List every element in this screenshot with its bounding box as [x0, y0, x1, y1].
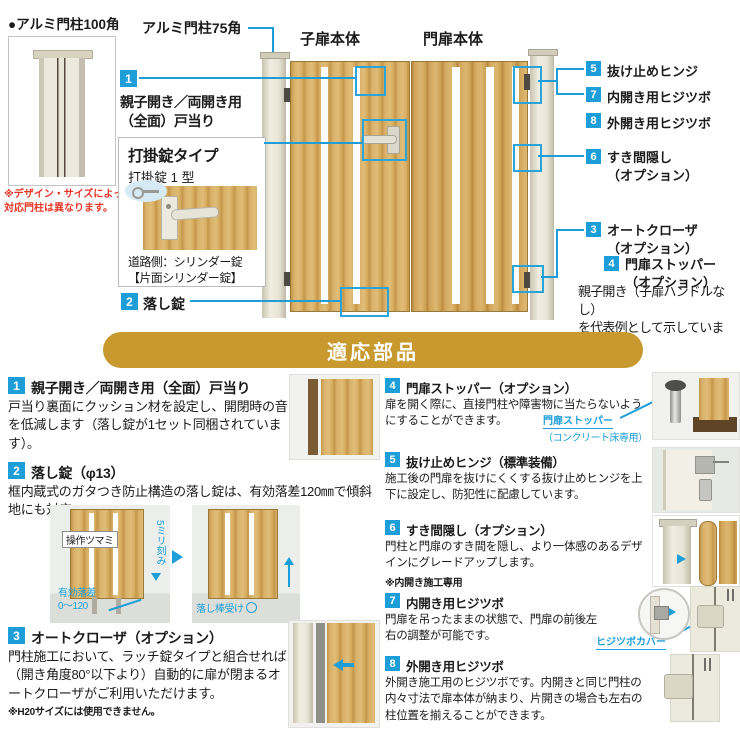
callout-7-badge: 7	[586, 87, 601, 102]
post100-note: ※デザイン・サイズによって 対応門柱は異なります。	[4, 188, 133, 215]
part-7-title: 内開き用ヒジツボ	[406, 593, 504, 612]
part-1-title: 親子開き／両開き用（全面）戸当り	[31, 378, 250, 398]
stopper-label-sub: （コンクリート床専用）	[543, 429, 648, 444]
part-8-title: 外開き用ヒジツボ	[406, 656, 504, 675]
stopper-label: 門扉ストッパー	[543, 412, 613, 429]
door-corner	[699, 378, 729, 420]
arrow-down-icon	[151, 573, 161, 581]
catalog-page: ●アルミ門柱100角 ※デザイン・サイズによって 対応門柱は異なります。 アルミ…	[0, 0, 740, 740]
auto-closer-body	[316, 623, 325, 723]
part-1-badge: 1	[8, 377, 25, 394]
hinge-pin	[713, 461, 729, 463]
adjust-pin	[704, 658, 706, 671]
callout-line	[139, 77, 355, 79]
callout-3-label: オートクローザ （オプション）	[607, 222, 698, 257]
part-7-inset-circle	[638, 588, 690, 640]
lock-type-panel: 打掛錠タイプ 打掛錠 1 型 道路側：シリンダー錠 【片面シリンダー錠】	[118, 137, 266, 287]
part-5-title: 抜け止めヒンジ（標準装備）	[406, 452, 565, 471]
pitch-label: 5ミリ刻み	[152, 520, 167, 566]
arrow-right-icon	[172, 550, 183, 564]
part-3-body: 門柱施工において、ラッチ錠タイプと組合せれば（開き角度80°以下より）自動的に扉…	[8, 648, 288, 703]
arrow-right-icon	[669, 608, 676, 616]
drop-range-label: 有効落差 0～120	[58, 588, 96, 613]
post100-label: ●アルミ門柱100角	[8, 13, 120, 33]
part-1-image	[289, 374, 380, 460]
key-stem	[143, 190, 159, 193]
doorstop-strip	[308, 379, 318, 455]
section-banner: 適応部品	[103, 332, 643, 368]
adjust-pin	[709, 658, 711, 671]
part-6-title: すき間隠し（オプション）	[406, 520, 552, 539]
door-slit	[249, 513, 254, 595]
door-edge	[327, 623, 375, 723]
door-edge	[719, 521, 737, 584]
door-slit	[89, 513, 94, 595]
callout-line	[248, 27, 274, 29]
callout-line	[538, 155, 584, 157]
part-4-badge: 4	[385, 378, 400, 393]
part-4-image	[652, 372, 740, 440]
door-slit	[353, 67, 360, 304]
door-slit	[486, 67, 494, 304]
part-6-note: ※内開き施工専用	[385, 574, 462, 589]
part-7-body: 門扉を吊ったままの状態で、門扉の前後左右の調整が可能です。	[385, 612, 605, 645]
stopper-post	[670, 387, 681, 423]
part-6-image	[652, 515, 740, 587]
callout-1-badge: 1	[120, 70, 137, 87]
part-6-badge: 6	[385, 520, 400, 535]
callout-6-badge: 6	[586, 149, 601, 164]
callout-2-label: 落し錠	[143, 294, 185, 314]
part-1-body: 戸当り裏面にクッション材を設定し、開閉時の音を低減します（落し錠が1セット同梱さ…	[8, 398, 293, 453]
post-body	[39, 58, 85, 177]
callout-line	[556, 68, 584, 70]
anti-lift-hinge-bottom	[699, 479, 712, 501]
arrow-stem	[288, 565, 290, 587]
callout-line	[556, 93, 584, 95]
part-6-body: 門柱と門扉のすき間を隠し、より一体感のあるデザインにグレードアップします。	[385, 539, 650, 572]
hinge-cover	[664, 674, 693, 699]
door-slit	[321, 67, 328, 304]
part-3-image	[288, 620, 380, 728]
door-slit	[225, 513, 230, 595]
hinge-cover	[697, 605, 724, 628]
post75-label: アルミ門柱75角	[142, 18, 241, 38]
callout-box-hinge-top	[513, 66, 542, 104]
adjust-pin	[727, 589, 729, 601]
knob-label: 操作ツマミ	[62, 531, 118, 548]
callout-line	[556, 68, 558, 95]
main-door	[411, 61, 528, 312]
receiver-label: 落し棒受け	[196, 600, 257, 615]
post100-photo	[8, 36, 116, 186]
mini-hinge	[654, 606, 669, 620]
callout-line	[556, 229, 558, 278]
main-door-label: 門扉本体	[423, 28, 483, 49]
left-post-cap	[260, 52, 290, 59]
callout-8-badge: 8	[586, 113, 601, 128]
callout-7-label: 内開き用ヒジツボ	[607, 87, 711, 106]
part-5-badge: 5	[385, 452, 400, 467]
callout-line	[541, 276, 557, 278]
lock-type-title: 打掛錠タイプ	[128, 144, 218, 166]
arrow-right-icon	[677, 554, 686, 564]
callout-2-badge: 2	[121, 293, 138, 310]
part-3-note: ※H20サイズには使用できません。	[8, 703, 160, 718]
callout-line	[190, 300, 340, 302]
callout-box-latch	[362, 119, 407, 161]
receiver-circle-icon	[246, 602, 257, 613]
adjust-pin	[732, 589, 734, 601]
callout-line	[538, 80, 558, 82]
callout-3-badge: 3	[586, 222, 601, 237]
drop-lock-door	[208, 509, 278, 599]
callout-box-doorstop	[355, 66, 386, 96]
callout-line	[556, 229, 584, 231]
lock-cylinder	[166, 204, 171, 209]
part-5-body: 施工後の門扉を抜けにくくする抜け止めヒンジを上下に設定し、防犯性に配慮しています…	[385, 471, 650, 504]
drop-lock-door	[70, 509, 144, 599]
part-7-image	[690, 586, 740, 652]
callout-4-badge: 4	[604, 256, 619, 271]
callout-5-label: 抜け止めヒンジ	[607, 61, 698, 80]
callout-1-label: 親子開き／両開き用 （全面）戸当り	[120, 93, 242, 131]
callout-line	[272, 27, 274, 53]
lock-lever	[171, 206, 220, 220]
key-bow	[132, 187, 144, 199]
banner-title: 適応部品	[327, 336, 419, 365]
callout-5-badge: 5	[586, 61, 601, 76]
part-7-badge: 7	[385, 593, 400, 608]
door-slit	[113, 513, 118, 595]
callout-box-gapcover	[513, 144, 542, 172]
key-icon	[125, 180, 167, 202]
callout-line	[264, 142, 362, 144]
callout-6-label: すき間隠し （オプション）	[607, 149, 698, 184]
callout-box-droplock	[340, 287, 389, 317]
part-5-image	[652, 447, 740, 513]
stopper-cap	[665, 380, 686, 391]
part-4-title: 門扉ストッパー（オプション）	[406, 378, 577, 397]
gate-post	[293, 623, 313, 723]
callout-box-hinge-bottom	[512, 265, 544, 293]
door-slit	[452, 67, 460, 304]
part-2-title: 落し錠（φ13）	[31, 463, 124, 483]
part-8-body: 外開き施工用のヒジツボです。内開きと同じ門柱の内々寸法で扉本体が納まり、片開きの…	[385, 675, 650, 724]
door-corner	[321, 379, 373, 455]
arrow-up-icon	[284, 557, 294, 565]
arrow-stem	[342, 663, 354, 667]
part-8-image	[652, 652, 738, 722]
part-3-title: オートクローザ（オプション）	[31, 628, 223, 648]
right-post-cap	[528, 49, 558, 56]
anti-lift-hinge-top	[695, 456, 715, 474]
lock-caption: 道路側：シリンダー錠 【片面シリンダー錠】	[128, 254, 242, 286]
callout-8-label: 外開き用ヒジツボ	[607, 113, 711, 132]
part-8-badge: 8	[385, 656, 400, 671]
child-door	[290, 61, 410, 312]
child-door-label: 子扉本体	[300, 28, 360, 49]
gap-cover	[699, 521, 717, 586]
part-2-badge: 2	[8, 462, 25, 479]
part-3-badge: 3	[8, 627, 25, 644]
